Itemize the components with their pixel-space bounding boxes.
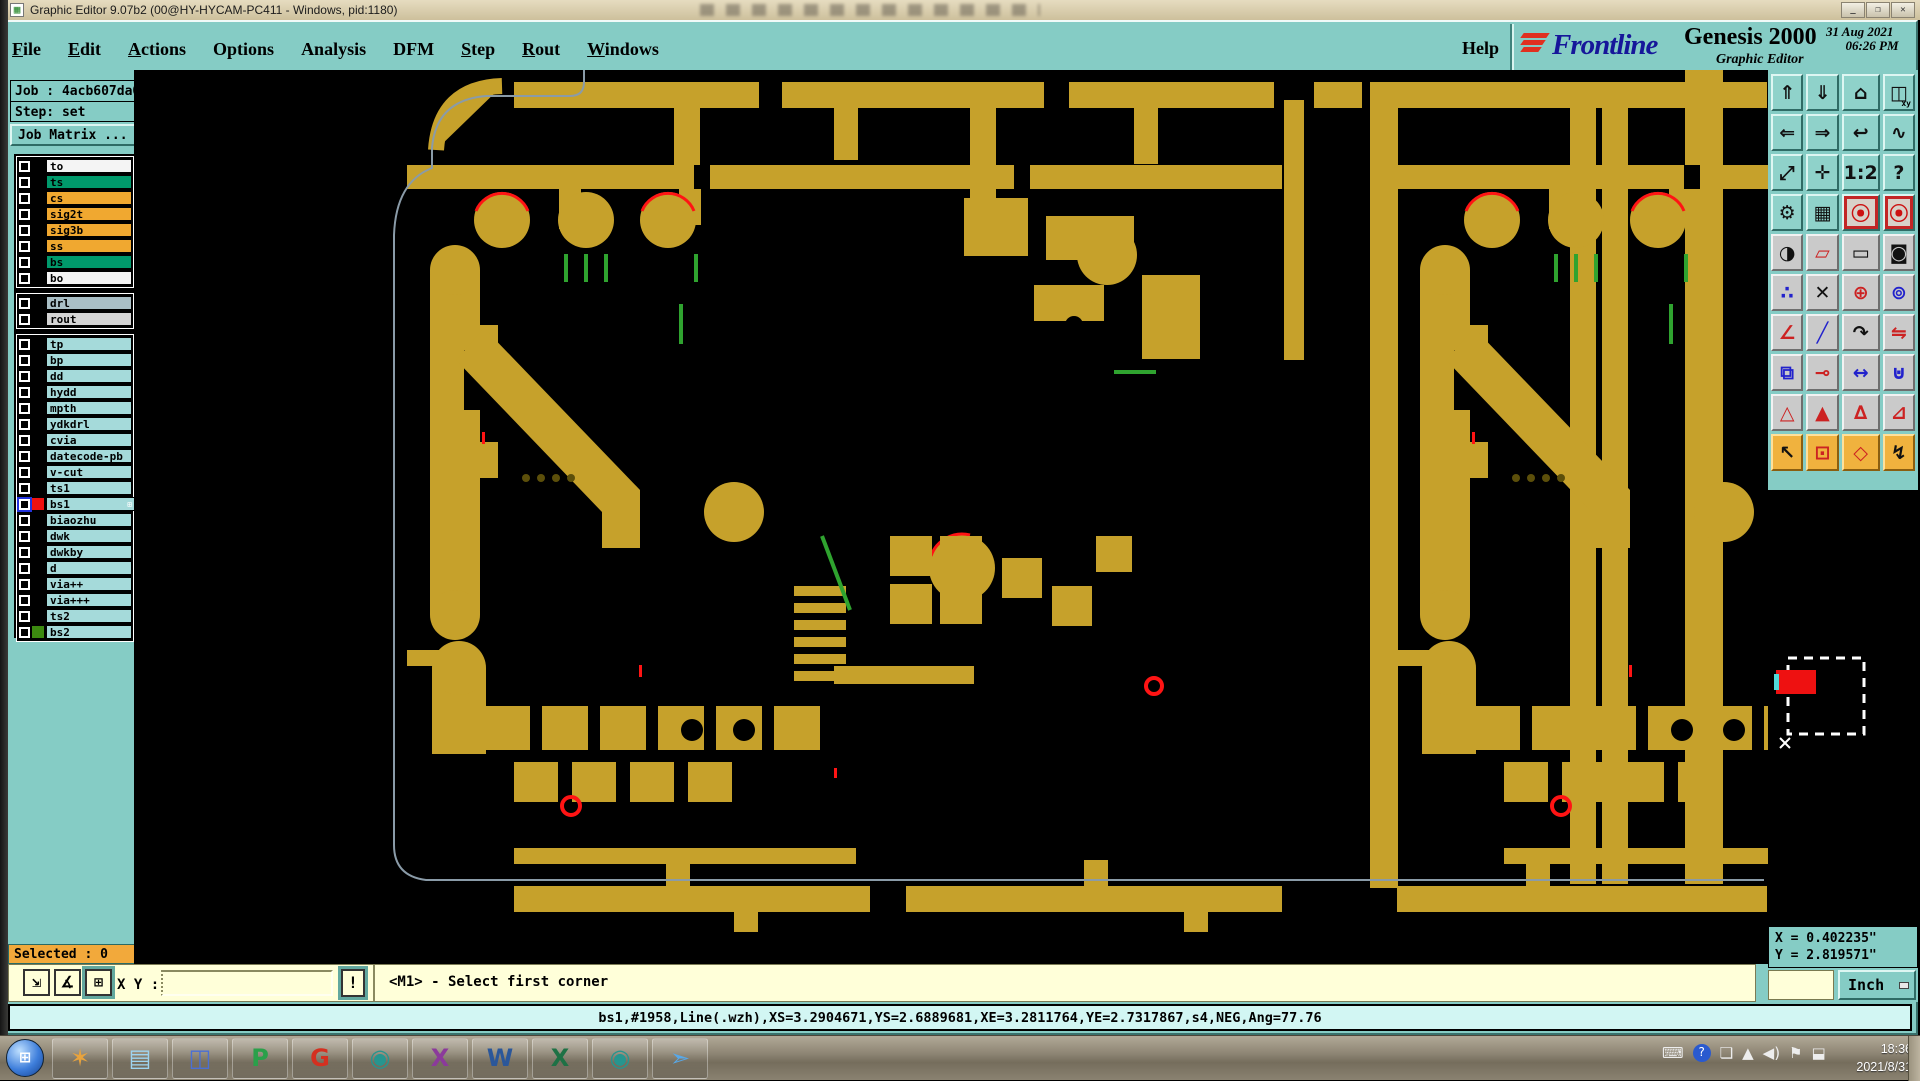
layer-row-ss[interactable]: ss <box>18 238 132 254</box>
menu-analysis[interactable]: Analysis <box>301 39 366 60</box>
layer-panel: totscssig2tsig3bssbsbodrlrouttpbpddhyddm… <box>14 154 136 638</box>
layer-row-bp[interactable]: bp <box>18 352 132 368</box>
layer-swatch-ts2 <box>32 610 44 622</box>
layer-swatch-via++ <box>32 578 44 590</box>
layer-row-bs1[interactable]: bs1⊞ <box>18 496 132 512</box>
layer-checkbox-to[interactable] <box>19 161 30 172</box>
layer-row-via++[interactable]: via++ <box>18 576 132 592</box>
layer-checkbox-datecode-pb[interactable] <box>19 451 30 462</box>
measure-ruler-icon: ▭ <box>1852 242 1870 264</box>
layer-row-v-cut[interactable]: v-cut <box>18 464 132 480</box>
layer-swatch-via+++ <box>32 594 44 606</box>
background-window-title <box>700 4 1040 16</box>
layer-swatch-hydd <box>32 386 44 398</box>
grid-display-button[interactable]: ▦ <box>1806 194 1838 231</box>
merge-shapes-button[interactable]: ⊍ <box>1883 354 1915 391</box>
network-icon[interactable]: ⬓ <box>1812 1044 1826 1062</box>
layer-checkbox-ydkdrl[interactable] <box>19 419 30 430</box>
arc-fill-b-icon: ▲ <box>1815 402 1830 424</box>
layer-row-bo[interactable]: bo <box>18 270 132 286</box>
zoom-center-button[interactable]: ✛ <box>1806 154 1838 191</box>
zoom-out-fit-button[interactable]: ⤢ <box>1771 154 1803 191</box>
cam-viewer-2-icon[interactable]: ◉ <box>592 1038 648 1079</box>
window-title-bar: ▦ Graphic Editor 9.07b2 (00@HY-HYCAM-PC4… <box>0 0 1920 20</box>
layer-row-sig3b[interactable]: sig3b <box>18 222 132 238</box>
xy-input[interactable] <box>161 970 333 996</box>
minimize-button[interactable]: _ <box>1841 2 1865 18</box>
menu-actions[interactable]: Actions <box>128 39 186 60</box>
layer-checkbox-dwk[interactable] <box>19 531 30 542</box>
box-arrow-down-button[interactable]: ⇓ <box>1806 74 1838 111</box>
status-bar: bs1,#1958,Line(.wzh),XS=3.2904671,YS=2.6… <box>8 1004 1912 1031</box>
window-left-edge <box>0 0 8 1035</box>
layer-checkbox-sig2t[interactable] <box>19 209 30 220</box>
layer-swatch-ss <box>32 240 44 252</box>
layer-row-dd[interactable]: dd <box>18 368 132 384</box>
layer-label-bo: bo <box>46 271 132 285</box>
taskbar: ⊞ ✶▤◫PG◉XWX◉➣ ⌨?❏▲◀)⚑⬓ 18:36 2021/8/31 <box>0 1035 1920 1080</box>
confirm-button[interactable]: ! <box>341 969 365 997</box>
right-toolbar-panel: ⇑⇓⌂◫xy⇐⇒↩∿⤢✛1:2?⚙▦⦿⦿◑▱▭◙∴✕⊕⊚∠╱↷⇋⧉⊸↔⊍△▲∆⊿… <box>1768 70 1918 926</box>
layer-swatch-biaozhu <box>32 514 44 526</box>
layer-checkbox-bs1[interactable] <box>19 499 30 510</box>
keyboard-icon[interactable]: ⌨ <box>1662 1044 1684 1062</box>
slope-tool-button[interactable]: ╱ <box>1806 314 1838 351</box>
window-xy-button[interactable]: ◫xy <box>1883 74 1915 111</box>
layer-row-sig2t[interactable]: sig2t <box>18 206 132 222</box>
logo-stripe-icon <box>1520 33 1550 38</box>
logo-stripe-icon <box>1520 40 1546 45</box>
layer-label-rout: rout <box>46 312 132 326</box>
layer-row-to[interactable]: to <box>18 158 132 174</box>
excel-icon[interactable]: X <box>532 1038 588 1079</box>
select-cursor-icon: ↖ <box>1779 442 1795 464</box>
arc-fill-c-icon: ∆ <box>1854 402 1867 424</box>
select-pad-icon: ◙ <box>1890 242 1908 264</box>
menu-brand-separator <box>1510 24 1514 70</box>
box-arrow-down-icon: ⇓ <box>1815 82 1831 104</box>
layer-label-sig2t: sig2t <box>46 207 132 221</box>
logo-text: Frontline <box>1552 29 1657 62</box>
flexlm-p-icon[interactable]: P <box>232 1038 288 1079</box>
copy-pad-button[interactable]: ⧉ <box>1771 354 1803 391</box>
notepad-icon[interactable]: ▤ <box>112 1038 168 1079</box>
menu-edit[interactable]: Edit <box>68 39 101 60</box>
grow-symbol-icon: ⊕ <box>1853 282 1869 304</box>
volume-icon[interactable]: ◀) <box>1763 1044 1780 1062</box>
previous-view-button[interactable]: ↩ <box>1842 114 1880 151</box>
layer-checkbox-ts1[interactable] <box>19 483 30 494</box>
layer-label-mpth: mpth <box>46 401 132 415</box>
layer-swatch-ts1 <box>32 482 44 494</box>
layer-swatch-bs <box>32 256 44 268</box>
menu-windows[interactable]: Windows <box>587 39 659 60</box>
units-spacer <box>1768 970 1834 1000</box>
coordinate-readout: X = 0.402235" Y = 2.819571" <box>1768 926 1918 968</box>
navigator-origin-mark-icon <box>1780 738 1790 748</box>
select-window-icon: ⊡ <box>1815 442 1831 464</box>
layer-row-cvia[interactable]: cvia <box>18 432 132 448</box>
delete-cross-icon: ✕ <box>1815 282 1831 304</box>
layer-checkbox-v-cut[interactable] <box>19 467 30 478</box>
product-name: Genesis 2000 <box>1684 24 1817 51</box>
net-markup-button[interactable]: ∴ <box>1771 274 1803 311</box>
arc-fill-b-button[interactable]: ▲ <box>1806 394 1838 431</box>
layer-label-via+++: via+++ <box>46 593 132 607</box>
units-dropdown[interactable]: Inch <box>1838 970 1916 1000</box>
layer-row-ts[interactable]: ts <box>18 174 132 190</box>
layer-row-dwk[interactable]: dwk <box>18 528 132 544</box>
layer-label-bs1: bs1 <box>46 497 135 511</box>
menu-rout[interactable]: Rout <box>522 39 560 60</box>
layer-swatch-rout <box>32 313 44 325</box>
layer-label-cvia: cvia <box>46 433 132 447</box>
layer-row-tp[interactable]: tp <box>18 336 132 352</box>
app-window-icon: ▦ <box>10 3 24 17</box>
layer-checkbox-dd[interactable] <box>19 371 30 382</box>
reshape-pad-button[interactable]: ▱ <box>1806 234 1838 271</box>
close-button[interactable]: ✕ <box>1891 2 1915 18</box>
layer-checkbox-ss[interactable] <box>19 241 30 252</box>
layer-row-biaozhu[interactable]: biaozhu <box>18 512 132 528</box>
menu-help[interactable]: Help <box>1462 38 1499 59</box>
layer-swatch-ts <box>32 176 44 188</box>
grid-lock-button[interactable]: ⊞ <box>85 969 112 996</box>
move-symbol-button[interactable]: ⊚ <box>1883 274 1915 311</box>
navigator-zoom-rect <box>1776 670 1816 694</box>
merge-shapes-icon: ⊍ <box>1891 362 1906 384</box>
action-flag-icon[interactable]: ⚑ <box>1789 1044 1802 1062</box>
layer-label-v-cut: v-cut <box>46 465 132 479</box>
stretch-segment-icon: ⊸ <box>1815 362 1831 384</box>
layer-row-ts2[interactable]: ts2 <box>18 608 132 624</box>
layer-checkbox-biaozhu[interactable] <box>19 515 30 526</box>
window-stack-icon[interactable]: ❏ <box>1720 1044 1733 1062</box>
layer-label-ts2: ts2 <box>46 609 132 623</box>
angle-measure-button[interactable]: ∡ <box>54 969 81 996</box>
pcb-canvas[interactable] <box>134 70 1768 964</box>
logo-stripe-icon <box>1520 47 1542 52</box>
frontline-logo: Frontline <box>1522 27 1698 69</box>
show-hidden-icon[interactable]: ▲ <box>1742 1044 1754 1062</box>
layer-group: totscssig2tsig3bssbsbo <box>16 156 134 288</box>
signal-layers-b-button[interactable]: ⦿ <box>1883 194 1915 231</box>
select-polygon-button[interactable]: ◇ <box>1842 434 1880 471</box>
product-subtitle: Graphic Editor <box>1716 52 1804 68</box>
layer-swatch-datecode-pb <box>32 450 44 462</box>
select-route-icon: ↯ <box>1891 442 1907 464</box>
layer-checkbox-cs[interactable] <box>19 193 30 204</box>
home-view-button[interactable]: ⌂ <box>1842 74 1880 111</box>
taskbar-clock[interactable]: 18:36 2021/8/31 <box>1838 1040 1912 1076</box>
box-arrow-left-button[interactable]: ⇐ <box>1771 114 1803 151</box>
box-arrow-up-icon: ⇑ <box>1779 82 1795 104</box>
signal-layers-a-button[interactable]: ⦿ <box>1842 194 1880 231</box>
layer-checkbox-hydd[interactable] <box>19 387 30 398</box>
slope-tool-icon: ╱ <box>1817 322 1828 344</box>
layer-label-via++: via++ <box>46 577 132 591</box>
dimension-tool-button[interactable]: ↔ <box>1842 354 1880 391</box>
maximize-button[interactable]: ❐ <box>1866 2 1890 18</box>
dimension-tool-icon: ↔ <box>1853 362 1869 384</box>
select-pad-button[interactable]: ◙ <box>1883 234 1915 271</box>
layer-swatch-d <box>32 562 44 574</box>
layer-label-cs: cs <box>46 191 132 205</box>
layer-row-bs2[interactable]: bs2 <box>18 624 132 640</box>
exceed-x-icon[interactable]: X <box>412 1038 468 1079</box>
layer-swatch-dwk <box>32 530 44 542</box>
box-arrow-up-button[interactable]: ⇑ <box>1771 74 1803 111</box>
date-time: 31 Aug 2021 06:26 PM <box>1826 25 1918 53</box>
layer-swatch-mpth <box>32 402 44 414</box>
layer-checkbox-d[interactable] <box>19 563 30 574</box>
select-window-button[interactable]: ⊡ <box>1806 434 1838 471</box>
home-view-icon: ⌂ <box>1854 82 1868 104</box>
layer-checkbox-bs2[interactable] <box>19 627 30 638</box>
layer-row-dwkby[interactable]: dwkby <box>18 544 132 560</box>
angle-tool-icon: ∠ <box>1779 322 1796 344</box>
layer-label-dwk: dwk <box>46 529 132 543</box>
layer-label-datecode-pb: datecode-pb <box>46 449 132 463</box>
layer-swatch-tp <box>32 338 44 350</box>
date: 31 Aug 2021 <box>1826 25 1918 39</box>
grid-display-icon: ▦ <box>1813 202 1831 224</box>
window-xy-sublabel: xy <box>1901 99 1911 108</box>
time: 06:26 PM <box>1826 39 1918 53</box>
layer-swatch-dd <box>32 370 44 382</box>
layer-row-hydd[interactable]: hydd <box>18 384 132 400</box>
highlight-symbol-button[interactable]: ◑ <box>1771 234 1803 271</box>
box-arrow-left-icon: ⇐ <box>1779 122 1795 144</box>
layer-checkbox-tp[interactable] <box>19 339 30 350</box>
context-help-button[interactable]: ? <box>1883 154 1915 191</box>
arc-fill-d-icon: ⊿ <box>1891 402 1907 424</box>
measure-ruler-button[interactable]: ▭ <box>1842 234 1880 271</box>
window-title: Graphic Editor 9.07b2 (00@HY-HYCAM-PC411… <box>30 3 397 17</box>
highlight-symbol-icon: ◑ <box>1779 242 1796 264</box>
layer-row-cs[interactable]: cs <box>18 190 132 206</box>
layer-swatch-sig2t <box>32 208 44 220</box>
delete-cross-button[interactable]: ✕ <box>1806 274 1838 311</box>
layer-checkbox-sig3b[interactable] <box>19 225 30 236</box>
layer-label-ss: ss <box>46 239 132 253</box>
reshape-pad-icon: ▱ <box>1815 242 1830 264</box>
box-arrow-right-icon: ⇒ <box>1815 122 1831 144</box>
layer-swatch-cvia <box>32 434 44 446</box>
menu-step[interactable]: Step <box>461 39 495 60</box>
context-help-icon: ? <box>1893 162 1904 184</box>
layer-checkbox-ts2[interactable] <box>19 611 30 622</box>
layer-row-drl[interactable]: drl <box>18 295 132 311</box>
system-tray: ⌨?❏▲◀)⚑⬓ <box>1662 1044 1826 1062</box>
layer-group: tpbpddhyddmpthydkdrlcviadatecode-pbv-cut… <box>16 334 134 642</box>
layer-label-biaozhu: biaozhu <box>46 513 132 527</box>
copy-pad-icon: ⧉ <box>1780 362 1794 384</box>
layer-swatch-drl <box>32 297 44 309</box>
rotate-tool-icon: ↷ <box>1853 322 1869 344</box>
layer-label-d: d <box>46 561 132 575</box>
layer-checkbox-drl[interactable] <box>19 298 30 309</box>
mirror-tool-icon: ⇋ <box>1891 322 1907 344</box>
layer-checkbox-via+++[interactable] <box>19 595 30 606</box>
messenger-icon[interactable]: ➣ <box>652 1038 708 1079</box>
layer-swatch-bo <box>32 272 44 284</box>
layer-swatch-ydkdrl <box>32 418 44 430</box>
stretch-segment-button[interactable]: ⊸ <box>1806 354 1838 391</box>
layer-swatch-v-cut <box>32 466 44 478</box>
mirror-tool-button[interactable]: ⇋ <box>1883 314 1915 351</box>
menu-file[interactable]: File <box>12 39 41 60</box>
navigator-viewport[interactable] <box>1788 658 1864 734</box>
serpentine-route-icon: ∿ <box>1891 122 1907 144</box>
layer-label-dwkby: dwkby <box>46 545 132 559</box>
layer-label-ts1: ts1 <box>46 481 132 495</box>
layer-swatch-bs1 <box>32 498 44 510</box>
layer-checkbox-mpth[interactable] <box>19 403 30 414</box>
layer-row-ts1[interactable]: ts1 <box>18 480 132 496</box>
arc-fill-d-button[interactable]: ⊿ <box>1883 394 1915 431</box>
coord-x: X = 0.402235" <box>1775 930 1917 947</box>
layer-row-bs[interactable]: bs <box>18 254 132 270</box>
layer-label-bs: bs <box>46 255 132 269</box>
layer-row-datecode-pb[interactable]: datecode-pb <box>18 448 132 464</box>
floppy-save-icon[interactable]: ◫ <box>172 1038 228 1079</box>
layer-row-via+++[interactable]: via+++ <box>18 592 132 608</box>
screen: ▦ Graphic Editor 9.07b2 (00@HY-HYCAM-PC4… <box>0 0 1920 1080</box>
cam-viewer-icon[interactable]: ◉ <box>352 1038 408 1079</box>
layer-label-bp: bp <box>46 353 132 367</box>
arc-fill-c-button[interactable]: ∆ <box>1842 394 1880 431</box>
layer-swatch-sig3b <box>32 224 44 236</box>
select-polygon-icon: ◇ <box>1853 442 1868 464</box>
show-desktop-button[interactable] <box>1908 1036 1920 1081</box>
menu-items: FileEditActionsOptionsAnalysisDFMStepRou… <box>12 39 659 60</box>
menu-dfm[interactable]: DFM <box>393 39 434 60</box>
previous-view-icon: ↩ <box>1853 122 1869 144</box>
signal-layers-b-icon: ⦿ <box>1889 199 1908 226</box>
toolbox-button[interactable]: ⚙ <box>1771 194 1803 231</box>
layer-group: drlrout <box>16 293 134 329</box>
start-button[interactable]: ⊞ <box>6 1039 44 1077</box>
clock-date: 2021/8/31 <box>1838 1058 1912 1076</box>
coord-y: Y = 2.819571" <box>1775 947 1917 964</box>
xy-label: X Y : <box>117 977 159 993</box>
scale-1-2-icon: 1:2 <box>1844 162 1878 184</box>
move-symbol-icon: ⊚ <box>1891 282 1907 304</box>
layer-badge-icon: ⊞ <box>127 500 132 509</box>
layer-swatch-cs <box>32 192 44 204</box>
layer-swatch-bs2 <box>32 626 44 638</box>
layer-checkbox-bs[interactable] <box>19 257 30 268</box>
menu-bar: FileEditActionsOptionsAnalysisDFMStepRou… <box>12 30 659 68</box>
layer-label-dd: dd <box>46 369 132 383</box>
scale-1-2-button[interactable]: 1:2 <box>1842 154 1880 191</box>
serpentine-route-button[interactable]: ∿ <box>1883 114 1915 151</box>
layer-label-bs2: bs2 <box>46 625 132 639</box>
layer-label-drl: drl <box>46 296 132 310</box>
help-bubble-icon[interactable]: ? <box>1693 1044 1711 1062</box>
arc-fill-a-icon: △ <box>1780 402 1795 424</box>
layer-checkbox-dwkby[interactable] <box>19 547 30 558</box>
zoom-out-fit-icon: ⤢ <box>1780 162 1795 184</box>
layer-swatch-bp <box>32 354 44 366</box>
box-arrow-right-button[interactable]: ⇒ <box>1806 114 1838 151</box>
layer-checkbox-rout[interactable] <box>19 314 30 325</box>
layer-row-d[interactable]: d <box>18 560 132 576</box>
layer-row-mpth[interactable]: mpth <box>18 400 132 416</box>
angle-tool-button[interactable]: ∠ <box>1771 314 1803 351</box>
rotate-tool-button[interactable]: ↷ <box>1842 314 1880 351</box>
arc-fill-a-button[interactable]: △ <box>1771 394 1803 431</box>
command-bar: ⇲∡⊞ X Y : ! <M1> - Select first corner <box>8 964 1756 1002</box>
dropdown-indicator-icon <box>1899 982 1909 989</box>
menu-options[interactable]: Options <box>213 39 274 60</box>
navigator-cursor-bracket <box>1774 674 1779 690</box>
units-row: Inch <box>1768 968 1918 1002</box>
layer-row-ydkdrl[interactable]: ydkdrl <box>18 416 132 432</box>
toolbox-icon: ⚙ <box>1779 202 1796 224</box>
units-value: Inch <box>1848 976 1884 994</box>
zoom-window-button[interactable]: ⇲ <box>23 969 50 996</box>
layer-label-to: to <box>46 159 132 173</box>
word-icon[interactable]: W <box>472 1038 528 1079</box>
layer-checkbox-via++[interactable] <box>19 579 30 590</box>
genesis-g-icon[interactable]: G <box>292 1038 348 1079</box>
layer-swatch-dwkby <box>32 546 44 558</box>
layer-label-ydkdrl: ydkdrl <box>46 417 132 431</box>
net-markup-icon: ∴ <box>1781 282 1794 304</box>
clock-time: 18:36 <box>1838 1040 1912 1058</box>
navigator-panel[interactable] <box>1768 490 1918 926</box>
tool-grid: ⇑⇓⌂◫xy⇐⇒↩∿⤢✛1:2?⚙▦⦿⦿◑▱▭◙∴✕⊕⊚∠╱↷⇋⧉⊸↔⊍△▲∆⊿… <box>1768 70 1918 475</box>
layer-checkbox-bo[interactable] <box>19 273 30 284</box>
layer-checkbox-bp[interactable] <box>19 355 30 366</box>
layer-checkbox-ts[interactable] <box>19 177 30 188</box>
layer-checkbox-cvia[interactable] <box>19 435 30 446</box>
layer-label-ts: ts <box>46 175 132 189</box>
select-cursor-button[interactable]: ↖ <box>1771 434 1803 471</box>
grow-symbol-button[interactable]: ⊕ <box>1842 274 1880 311</box>
shell-icon[interactable]: ✶ <box>52 1038 108 1079</box>
signal-layers-a-icon: ⦿ <box>1851 199 1870 226</box>
select-route-button[interactable]: ↯ <box>1883 434 1915 471</box>
prompt-message: <M1> - Select first corner <box>373 965 1757 1001</box>
layer-label-sig3b: sig3b <box>46 223 132 237</box>
layer-label-tp: tp <box>46 337 132 351</box>
zoom-center-icon: ✛ <box>1815 162 1831 184</box>
layer-swatch-to <box>32 160 44 172</box>
layer-row-rout[interactable]: rout <box>18 311 132 327</box>
layer-label-hydd: hydd <box>46 385 132 399</box>
